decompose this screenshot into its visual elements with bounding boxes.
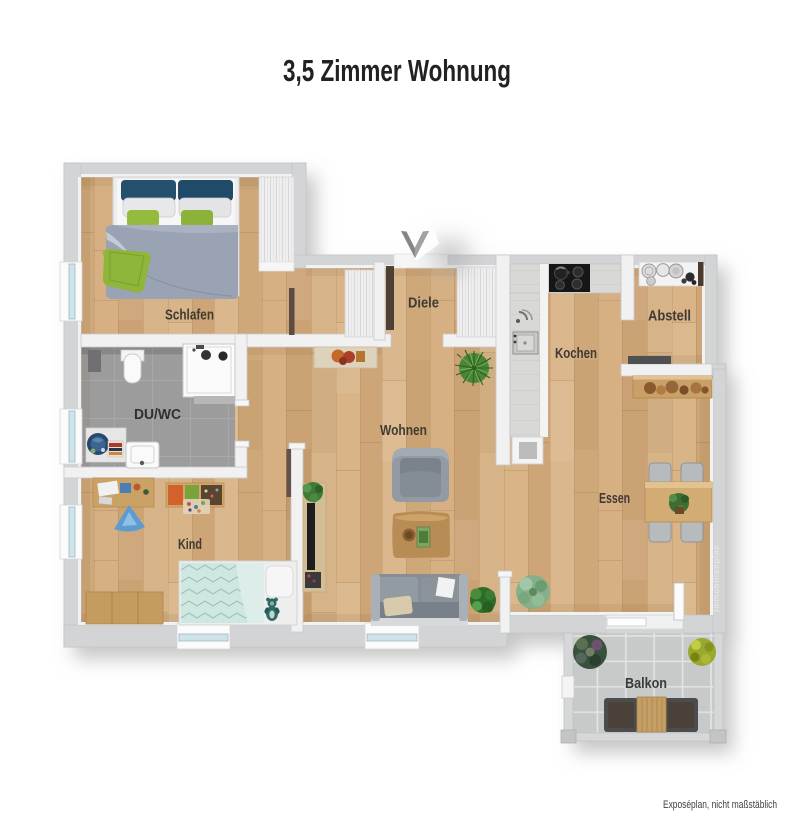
- svg-text:Wohnen: Wohnen: [380, 423, 427, 439]
- svg-text:Kochen: Kochen: [555, 346, 597, 362]
- svg-text:Essen: Essen: [599, 491, 630, 507]
- svg-text:3,5 Zimmer Wohnung: 3,5 Zimmer Wohnung: [283, 53, 511, 88]
- svg-text:Balkon: Balkon: [625, 676, 667, 692]
- svg-text:DU/WC: DU/WC: [134, 407, 181, 423]
- svg-text:Diele: Diele: [408, 296, 439, 312]
- svg-text:Exposéplan, nicht maßstäblich: Exposéplan, nicht maßstäblich: [663, 799, 777, 811]
- svg-text:Immobilienplan: Immobilienplan: [712, 544, 721, 612]
- svg-text:Kind: Kind: [178, 537, 202, 553]
- svg-text:Abstell: Abstell: [648, 309, 691, 325]
- svg-text:Schlafen: Schlafen: [165, 308, 214, 324]
